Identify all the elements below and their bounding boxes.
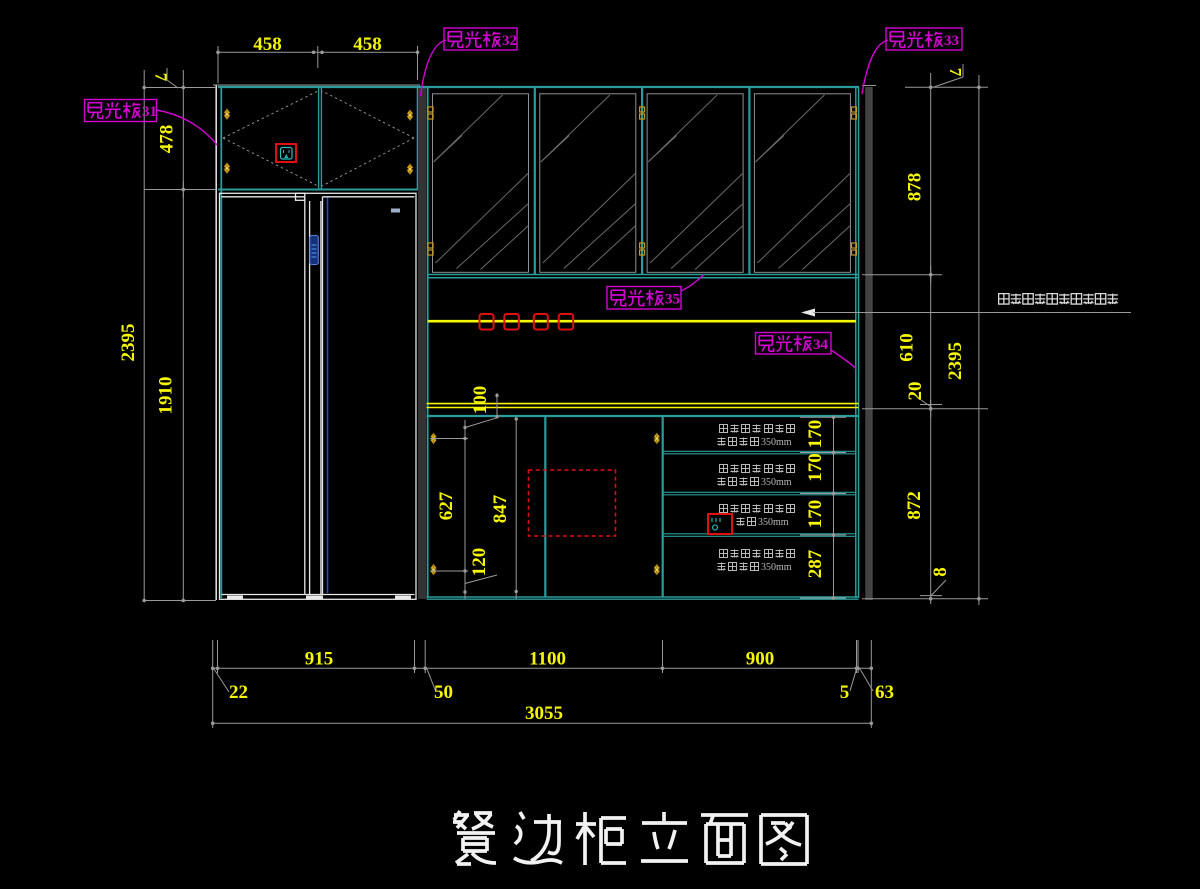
svg-text:20: 20 — [905, 382, 926, 401]
svg-text:170: 170 — [805, 500, 826, 529]
svg-text:1100: 1100 — [529, 649, 566, 670]
svg-text:22: 22 — [229, 682, 248, 703]
svg-text:458: 458 — [353, 34, 382, 55]
svg-text:915: 915 — [305, 649, 334, 670]
svg-text:32: 32 — [502, 33, 517, 49]
svg-text:34: 34 — [813, 337, 829, 353]
svg-text:1910: 1910 — [156, 377, 177, 415]
svg-text:458: 458 — [253, 34, 282, 55]
svg-text:350mm: 350mm — [761, 437, 792, 448]
svg-text:610: 610 — [897, 333, 918, 362]
svg-text:872: 872 — [904, 491, 925, 520]
svg-text:350mm: 350mm — [758, 517, 789, 528]
svg-text:33: 33 — [944, 33, 959, 49]
svg-text:50: 50 — [434, 682, 453, 703]
svg-text:627: 627 — [436, 491, 457, 520]
svg-text:31: 31 — [142, 104, 157, 120]
svg-text:35: 35 — [665, 292, 680, 308]
svg-text:3055: 3055 — [525, 703, 563, 724]
svg-text:120: 120 — [469, 548, 490, 577]
svg-text:170: 170 — [805, 420, 826, 449]
svg-text:2395: 2395 — [945, 342, 966, 380]
svg-text:287: 287 — [805, 549, 826, 578]
svg-text:350mm: 350mm — [761, 562, 792, 573]
svg-text:878: 878 — [905, 173, 926, 202]
svg-text:7: 7 — [152, 73, 171, 82]
svg-text:2395: 2395 — [118, 324, 139, 362]
svg-text:478: 478 — [157, 125, 178, 154]
svg-text:170: 170 — [805, 453, 826, 482]
svg-text:100: 100 — [470, 386, 491, 415]
svg-text:350mm: 350mm — [761, 477, 792, 488]
svg-text:8: 8 — [930, 567, 951, 577]
svg-text:900: 900 — [746, 649, 775, 670]
svg-text:5: 5 — [840, 682, 850, 703]
svg-text:847: 847 — [490, 494, 511, 523]
svg-text:63: 63 — [875, 682, 894, 703]
svg-text:7: 7 — [946, 68, 965, 77]
